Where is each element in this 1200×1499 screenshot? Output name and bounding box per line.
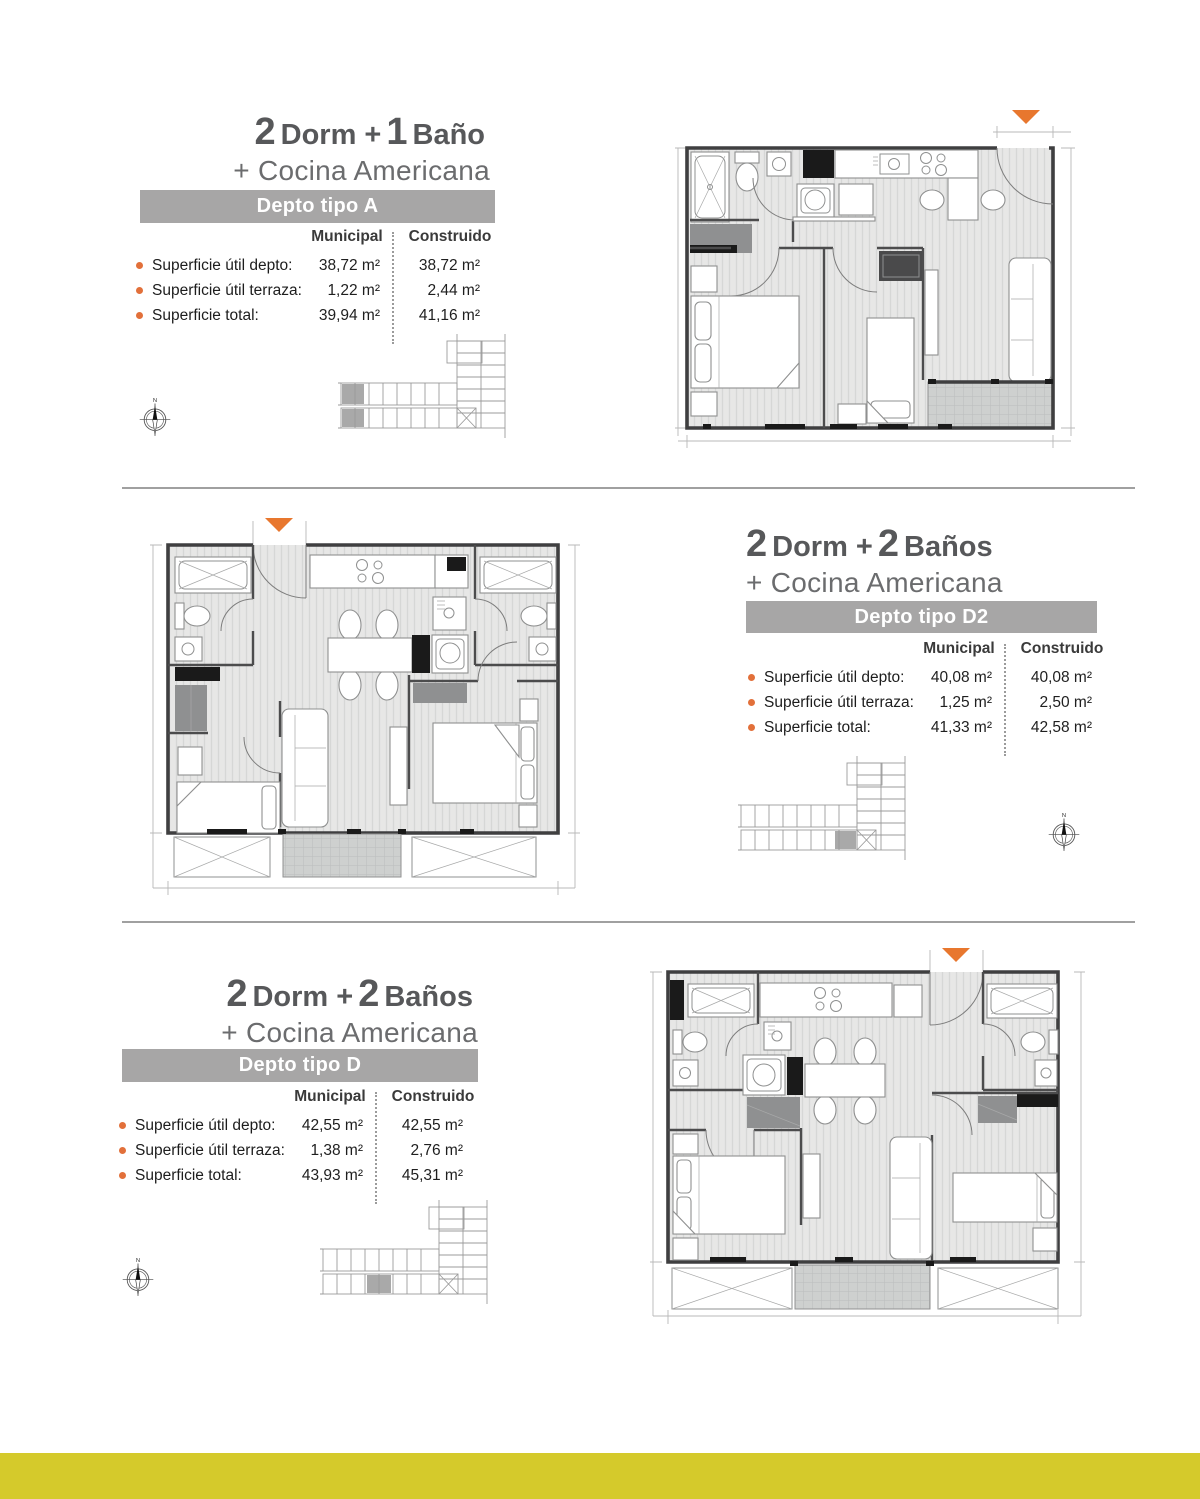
shelf: [390, 727, 407, 805]
dining-table: [805, 1064, 885, 1097]
row-label: Superficie útil depto:: [764, 667, 904, 689]
washer: [743, 1055, 785, 1095]
floor-plan-a: [675, 108, 1075, 458]
sofa: [1009, 258, 1051, 382]
row-label: Superficie útil depto:: [152, 255, 292, 277]
title-subtitle: + Cocina Americana: [150, 157, 490, 185]
highlighted-units: [835, 831, 856, 849]
title-num: 2: [254, 111, 275, 153]
row-value-municipal: 1,38 m²: [266, 1140, 363, 1162]
column-header-municipal: Municipal: [904, 640, 1014, 658]
row-value-construido: 42,55 m²: [364, 1115, 463, 1137]
row-value-municipal: 42,55 m²: [266, 1115, 363, 1137]
dining-table: [328, 638, 412, 672]
section-depto-d2: 2Dorm +2Baños + Cocina Americana Depto t…: [0, 489, 1200, 921]
compass-icon: N: [137, 394, 173, 440]
bullet-icon: [119, 1147, 126, 1154]
row-value-construido: 45,31 m²: [364, 1165, 463, 1187]
column-header-municipal: Municipal: [292, 228, 402, 246]
footer-bar: [0, 1453, 1200, 1499]
terrace: [928, 382, 1053, 428]
row-label: Superficie útil depto:: [135, 1115, 275, 1137]
title-num: 2: [746, 523, 767, 565]
surface-table-a: Municipal Construido Superficie útil dep…: [125, 228, 495, 346]
surface-table-d: Municipal Construido Superficie útil dep…: [108, 1088, 478, 1206]
terrace-row: [672, 1265, 1058, 1309]
title-text: Dorm +: [252, 981, 353, 1013]
title-num: 2: [358, 973, 379, 1015]
bullet-icon: [748, 674, 755, 681]
title-num: 1: [386, 111, 407, 153]
row-value-municipal: 43,93 m²: [266, 1165, 363, 1187]
floor-plan-d: [650, 940, 1085, 1340]
title-text: Baño: [413, 119, 486, 151]
row-value-municipal: 1,25 m²: [895, 692, 992, 714]
table-row: Superficie útil depto: 42,55 m² 42,55 m²: [108, 1115, 478, 1140]
row-label: Superficie total:: [135, 1165, 242, 1187]
row-value-municipal: 38,72 m²: [283, 255, 380, 277]
table-row: Superficie total: 39,94 m² 41,16 m²: [125, 305, 495, 330]
stool: [981, 190, 1005, 210]
key-plan-grid: [320, 1200, 487, 1304]
bullet-icon: [748, 724, 755, 731]
sofa: [282, 709, 328, 827]
section-title-d: 2Dorm +2Baños + Cocina Americana: [138, 975, 478, 1047]
row-value-municipal: 1,22 m²: [283, 280, 380, 302]
compass-icon: N: [1046, 809, 1082, 855]
building-key-plan-d: [320, 1200, 490, 1312]
title-text: Baños: [384, 981, 473, 1013]
title-subtitle: + Cocina Americana: [138, 1019, 478, 1047]
key-plan-grid: [738, 756, 905, 860]
section-title-d2: 2Dorm +2Baños + Cocina Americana: [746, 525, 1086, 597]
row-value-construido: 40,08 m²: [993, 667, 1092, 689]
table-row: Superficie total: 41,33 m² 42,58 m²: [737, 717, 1107, 742]
title-line: 2Dorm +1Baño: [150, 113, 490, 151]
compass-icon: N: [120, 1254, 156, 1300]
table-row: Superficie útil terraza: 1,22 m² 2,44 m²: [125, 280, 495, 305]
building-key-plan-d2: [738, 756, 908, 868]
shelf: [925, 270, 938, 355]
row-label: Superficie útil terraza:: [135, 1140, 285, 1162]
row-label: Superficie útil terraza:: [152, 280, 302, 302]
bullet-icon: [136, 312, 143, 319]
highlighted-units: [342, 384, 364, 427]
row-label: Superficie útil terraza:: [764, 692, 914, 714]
table-row: Superficie útil terraza: 1,25 m² 2,50 m²: [737, 692, 1107, 717]
living-room: [282, 709, 328, 827]
floor-plan-d2: [150, 505, 580, 905]
stool: [920, 190, 944, 210]
title-text: Dorm +: [772, 531, 873, 563]
entry-marker-icon: [1012, 110, 1040, 124]
column-header-municipal: Municipal: [275, 1088, 385, 1106]
living-room: [1009, 258, 1051, 382]
title-text: Dorm +: [281, 119, 382, 151]
title-num: 2: [226, 973, 247, 1015]
row-value-construido: 2,44 m²: [381, 280, 480, 302]
fridge: [447, 557, 466, 571]
island: [948, 178, 978, 220]
row-label: Superficie total:: [152, 305, 259, 327]
column-header-construido: Construido: [378, 1088, 488, 1106]
row-value-construido: 42,58 m²: [993, 717, 1092, 739]
table-row: Superficie útil depto: 38,72 m² 38,72 m²: [125, 255, 495, 280]
section-depto-d: 2Dorm +2Baños + Cocina Americana Depto t…: [0, 923, 1200, 1453]
row-label: Superficie total:: [764, 717, 871, 739]
table-row: Superficie útil depto: 40,08 m² 40,08 m²: [737, 667, 1107, 692]
title-subtitle: + Cocina Americana: [746, 569, 1086, 597]
type-bar-a: Depto tipo A: [140, 190, 495, 223]
building-key-plan-a: [338, 334, 508, 446]
bullet-icon: [136, 287, 143, 294]
row-value-municipal: 41,33 m²: [895, 717, 992, 739]
row-value-construido: 41,16 m²: [381, 305, 480, 327]
row-value-construido: 2,50 m²: [993, 692, 1092, 714]
bullet-icon: [119, 1172, 126, 1179]
type-bar-d: Depto tipo D: [122, 1049, 478, 1082]
terrace-row: [174, 834, 536, 877]
table-row: Superficie útil terraza: 1,38 m² 2,76 m²: [108, 1140, 478, 1165]
bullet-icon: [136, 262, 143, 269]
title-line: 2Dorm +2Baños: [138, 975, 478, 1013]
row-value-municipal: 39,94 m²: [283, 305, 380, 327]
fridge: [803, 150, 834, 178]
type-bar-d2: Depto tipo D2: [746, 601, 1097, 633]
terrace: [283, 834, 401, 877]
row-value-construido: 2,76 m²: [364, 1140, 463, 1162]
section-depto-a: 2Dorm +1Baño + Cocina Americana Depto ti…: [0, 0, 1200, 487]
column-header-construido: Construido: [1007, 640, 1117, 658]
compass-north-label: N: [1062, 813, 1066, 819]
title-num: 2: [878, 523, 899, 565]
sofa: [890, 1137, 932, 1259]
entry-marker-icon: [942, 948, 970, 962]
section-title-a: 2Dorm +1Baño + Cocina Americana: [150, 113, 490, 185]
entry-marker-icon: [265, 518, 293, 532]
surface-table-d2: Municipal Construido Superficie útil dep…: [737, 640, 1107, 758]
bullet-icon: [119, 1122, 126, 1129]
compass-north-label: N: [136, 1258, 140, 1264]
living-room: [890, 1137, 932, 1259]
table-row: Superficie total: 43,93 m² 45,31 m²: [108, 1165, 478, 1190]
shelf: [803, 1154, 820, 1218]
terrace: [795, 1265, 930, 1309]
row-value-construido: 38,72 m²: [381, 255, 480, 277]
compass-north-label: N: [153, 398, 157, 404]
title-line: 2Dorm +2Baños: [746, 525, 1086, 563]
washer: [432, 635, 468, 673]
bullet-icon: [748, 699, 755, 706]
title-text: Baños: [904, 531, 993, 563]
row-value-municipal: 40,08 m²: [895, 667, 992, 689]
column-header-construido: Construido: [395, 228, 505, 246]
